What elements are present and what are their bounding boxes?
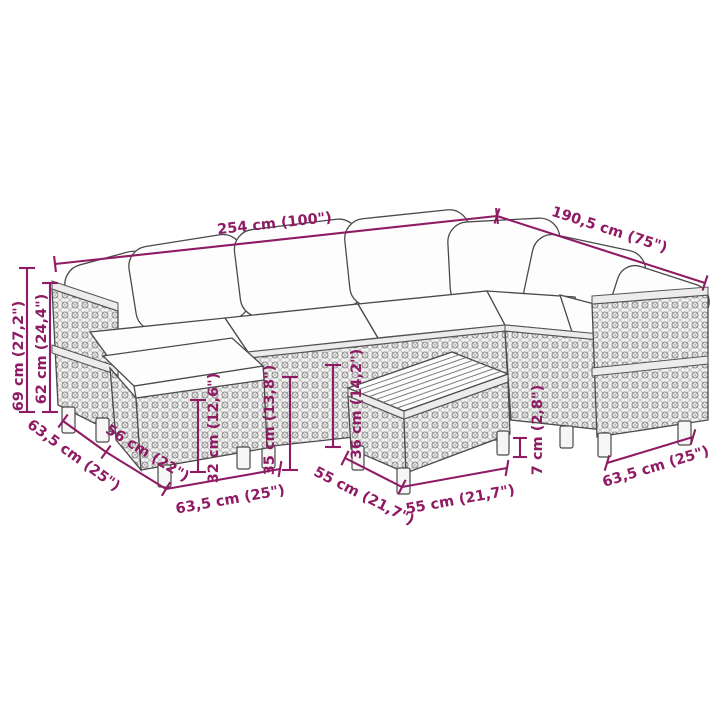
- dim-label-armrest-height: 62 cm (24,4"): [34, 294, 50, 405]
- footstool-leg: [237, 447, 250, 469]
- table-leg: [497, 431, 509, 455]
- dim-label-footstool-height: 32 cm (12,6"): [206, 373, 222, 484]
- dim-label-table-height: 36 cm (14,2"): [349, 349, 365, 460]
- sofa-leg: [560, 426, 573, 448]
- sofa-leg: [598, 433, 611, 457]
- dim-label-back-height: 69 cm (27,2"): [11, 301, 27, 412]
- dim-label-seat-height: 35 cm (13,8"): [262, 365, 278, 476]
- furniture-dimension-diagram: 254 cm (100") 190,5 cm (75") 69 cm (27,2…: [0, 0, 720, 720]
- dim-label-leg-height: 7 cm (2,8"): [530, 385, 546, 475]
- table-leg: [397, 468, 410, 494]
- right-front-rail: [505, 331, 604, 430]
